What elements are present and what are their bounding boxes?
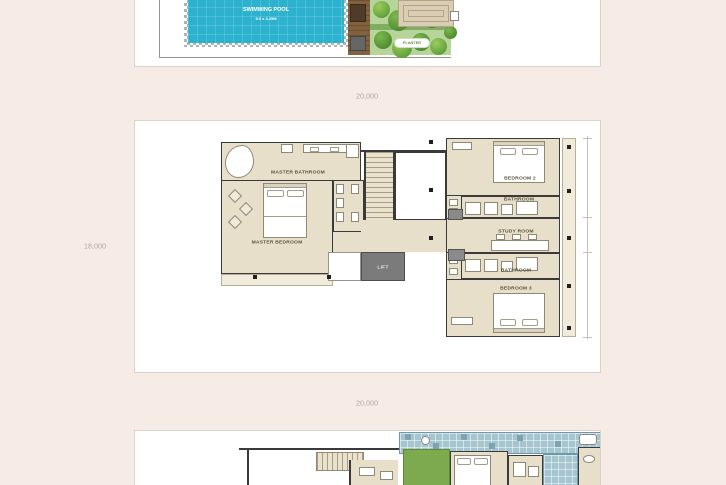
pillow <box>287 190 304 197</box>
floorplan-sheet: 20,000 18,000 20,000 SWIMMING POOL 9.0 x… <box>0 0 726 485</box>
fixture <box>380 471 393 480</box>
dimension-top: 20,000 <box>356 92 378 100</box>
column-marker <box>429 188 433 192</box>
swimming-pool-size: 9.0 x 3.25M <box>255 16 276 21</box>
column-marker <box>429 236 433 240</box>
dimension-line <box>587 136 588 339</box>
tree <box>430 38 447 55</box>
tree <box>373 1 390 18</box>
sink <box>484 259 498 272</box>
pillow <box>267 190 284 197</box>
deck-cabinet <box>350 4 366 22</box>
tree <box>374 31 392 49</box>
bench <box>452 142 472 150</box>
wall <box>239 448 405 450</box>
headboard <box>494 328 544 332</box>
column-marker <box>327 275 331 279</box>
column-marker <box>567 284 571 288</box>
wall <box>446 278 560 280</box>
toilet <box>281 144 293 153</box>
column-marker <box>429 140 433 144</box>
lift-label: LIFT <box>377 264 388 270</box>
lift-shaft: LIFT <box>361 252 405 281</box>
tile-accent <box>461 434 467 440</box>
bed <box>493 293 545 333</box>
master-balcony <box>221 274 333 286</box>
desk <box>491 240 549 251</box>
ground-floor-panel <box>134 430 601 485</box>
headboard <box>494 142 544 146</box>
closet-shelf <box>336 212 344 222</box>
wall <box>247 450 249 485</box>
sink <box>330 147 339 152</box>
dimension-tick <box>583 138 592 139</box>
cabinet <box>448 209 463 220</box>
wardrobe-shelf <box>449 199 458 206</box>
planter-pill: PLANTER <box>394 38 430 48</box>
dimension-tick <box>583 337 592 338</box>
sink <box>310 147 319 152</box>
bathroom-lower-label: BATHROOM <box>501 267 531 273</box>
terrace-walkway <box>543 454 578 485</box>
second-floor-panel: MASTER BATHROOM MASTER BEDROOM LI <box>134 120 601 373</box>
vanity-double-sink <box>303 144 347 153</box>
toilet <box>528 466 539 477</box>
corridor <box>333 232 361 252</box>
wall <box>446 217 560 219</box>
shower <box>513 462 526 477</box>
shower <box>465 202 481 215</box>
closet-shelf <box>351 212 359 222</box>
tree <box>444 26 457 39</box>
deck-shower <box>350 36 366 51</box>
master-bedroom-label: MASTER BEDROOM <box>252 239 303 245</box>
lawn <box>403 449 450 485</box>
garden-ornament <box>421 436 430 445</box>
pillow <box>457 458 471 465</box>
master-bed <box>263 183 307 238</box>
master-bathroom-label: MASTER BATHROOM <box>271 169 325 175</box>
closet-shelf <box>336 198 344 208</box>
tile-accent <box>405 434 411 440</box>
bathtub <box>516 201 538 215</box>
pergola-line <box>408 10 444 17</box>
pillow <box>474 458 488 465</box>
void-open-below <box>395 152 446 220</box>
site-boundary-bottom <box>159 57 451 58</box>
column-marker <box>567 326 571 330</box>
fixture <box>359 467 375 476</box>
pool-edge: SWIMMING POOL 9.0 x 3.25M <box>184 0 348 47</box>
closet-shelf <box>351 184 359 194</box>
pillow <box>500 319 516 326</box>
bench <box>451 317 473 325</box>
bed <box>454 455 491 485</box>
swimming-pool-label: SWIMMING POOL <box>243 6 289 12</box>
site-boundary-left <box>159 0 160 57</box>
gate-knob <box>450 11 459 21</box>
swimming-pool: SWIMMING POOL 9.0 x 3.25M <box>188 0 344 43</box>
column-marker <box>567 145 571 149</box>
corridor <box>361 220 446 252</box>
walk-in-closet <box>333 180 364 232</box>
pergola-patio <box>398 0 454 27</box>
tile-accent <box>517 435 523 441</box>
planter-label: PLANTER <box>403 41 421 45</box>
column-marker <box>253 275 257 279</box>
sink <box>583 455 595 463</box>
bathtub <box>579 434 597 445</box>
tile-accent <box>489 443 495 449</box>
shower <box>346 144 359 158</box>
dimension-left: 18,000 <box>84 242 106 250</box>
column-marker <box>567 236 571 240</box>
study-room-label: STUDY ROOM <box>498 228 533 234</box>
void <box>328 252 361 281</box>
bathroom <box>508 455 543 485</box>
closet-shelf <box>336 184 344 194</box>
bathroom <box>578 447 601 485</box>
bedroom-3-label: BEDROOM 3 <box>500 285 532 291</box>
shower <box>465 259 481 272</box>
pool-level-panel: SWIMMING POOL 9.0 x 3.25M PLANTER <box>134 0 601 67</box>
dimension-tick <box>583 252 592 253</box>
wardrobe-shelf <box>449 268 458 275</box>
bedroom-2-label: BEDROOM 2 <box>504 175 536 181</box>
blanket-line <box>264 216 306 217</box>
pillow <box>522 319 538 326</box>
column-marker <box>567 189 571 193</box>
sink <box>484 202 498 215</box>
headboard <box>264 184 306 188</box>
powder-room <box>349 460 398 485</box>
toilet <box>501 204 513 215</box>
pergola-line <box>403 5 449 22</box>
dimension-bottom: 20,000 <box>356 399 378 407</box>
pillow <box>522 148 538 155</box>
pillow <box>500 148 516 155</box>
cabinet <box>448 249 465 261</box>
tile-accent <box>555 441 561 447</box>
dimension-tick <box>583 217 592 218</box>
